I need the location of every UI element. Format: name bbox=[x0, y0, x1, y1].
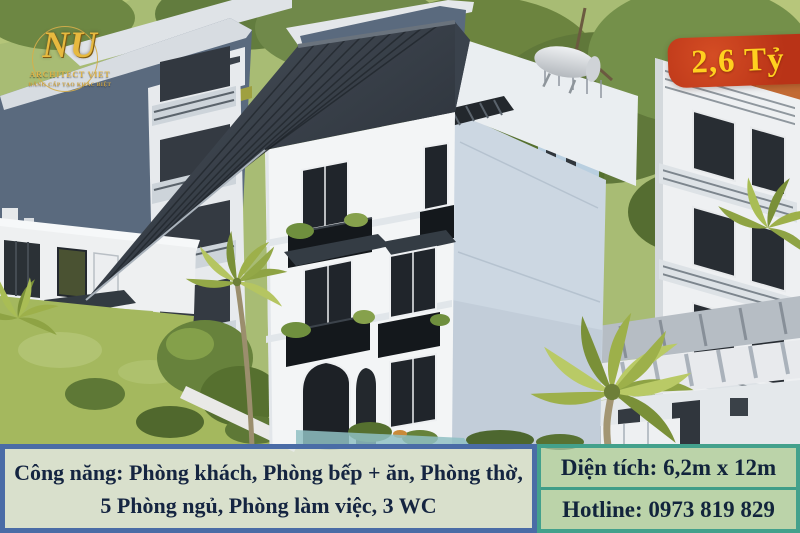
balcony-plant bbox=[286, 223, 314, 239]
logo-monogram: NU bbox=[20, 24, 120, 67]
brand-logo: NU ARCHITECT VIET ĐẲNG CẤP TẠO KHÁC BIỆT bbox=[20, 22, 120, 100]
balcony-plant bbox=[281, 322, 311, 338]
ad-image: NU ARCHITECT VIET ĐẲNG CẤP TẠO KHÁC BIỆT… bbox=[0, 0, 800, 533]
price-label: 2,6 Tỷ bbox=[691, 41, 786, 81]
window bbox=[424, 143, 448, 210]
area-row: Diện tích: 6,2m x 12m bbox=[541, 448, 796, 487]
logo-brand-name: ARCHITECT VIET bbox=[20, 70, 120, 79]
price-badge: 2,6 Tỷ bbox=[667, 34, 800, 89]
hotline-row: Hotline: 0973 819 829 bbox=[541, 487, 796, 529]
garage-door bbox=[4, 240, 40, 298]
logo-tagline: ĐẲNG CẤP TẠO KHÁC BIỆT bbox=[20, 82, 120, 88]
contact-box: Diện tích: 6,2m x 12m Hotline: 0973 819 … bbox=[537, 444, 800, 533]
features-box: Công năng: Phòng khách, Phòng bếp + ăn, … bbox=[0, 444, 537, 533]
info-banner: Công năng: Phòng khách, Phòng bếp + ăn, … bbox=[0, 444, 800, 533]
features-line-2: 5 Phòng ngủ, Phòng làm việc, 3 WC bbox=[5, 489, 532, 522]
features-line-1: Công năng: Phòng khách, Phòng bếp + ăn, … bbox=[5, 456, 532, 489]
